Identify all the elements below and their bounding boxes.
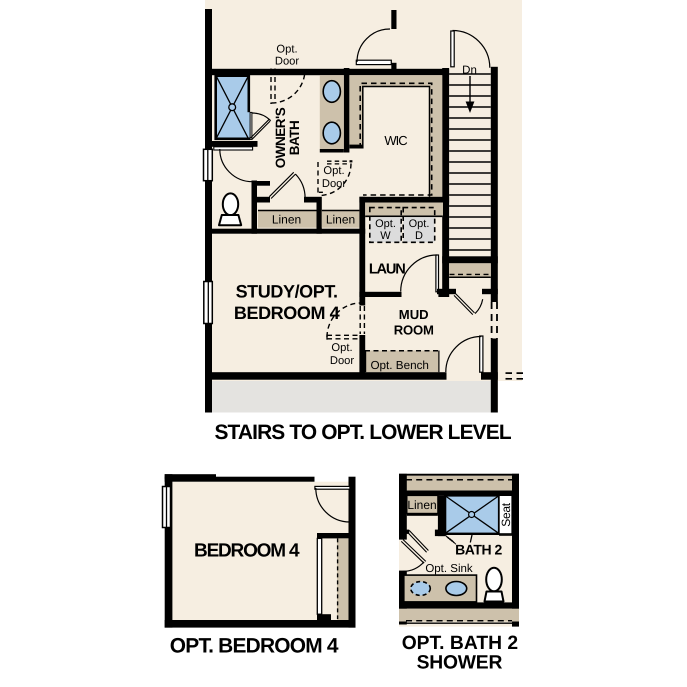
svg-text:Opt.: Opt.	[331, 342, 352, 354]
svg-text:W: W	[380, 230, 391, 242]
svg-text:Opt.: Opt.	[323, 165, 344, 177]
svg-text:Linen: Linen	[407, 498, 436, 512]
svg-text:BATH: BATH	[287, 121, 302, 156]
svg-text:BEDROOM 4: BEDROOM 4	[194, 541, 300, 562]
svg-text:STAIRS TO OPT. LOWER LEVEL: STAIRS TO OPT. LOWER LEVEL	[214, 421, 511, 444]
svg-text:Opt.: Opt.	[375, 218, 396, 230]
svg-text:OPT. BEDROOM 4: OPT. BEDROOM 4	[170, 635, 339, 658]
svg-text:SHOWER: SHOWER	[417, 653, 503, 674]
svg-text:Door: Door	[275, 56, 300, 68]
svg-text:Opt.: Opt.	[276, 44, 297, 56]
svg-text:Linen: Linen	[272, 213, 301, 227]
svg-text:Dn: Dn	[462, 65, 477, 77]
svg-text:STUDY/OPT.: STUDY/OPT.	[236, 282, 338, 302]
svg-text:LAUN: LAUN	[369, 262, 405, 278]
svg-text:Linen: Linen	[326, 213, 355, 227]
svg-text:BEDROOM 4: BEDROOM 4	[234, 303, 340, 323]
svg-text:WIC: WIC	[384, 133, 407, 148]
svg-text:D: D	[415, 230, 423, 242]
svg-text:Door: Door	[330, 355, 355, 367]
svg-text:Opt. Sink: Opt. Sink	[425, 563, 473, 575]
svg-text:Door: Door	[322, 178, 347, 190]
svg-text:OWNER'S: OWNER'S	[273, 107, 288, 168]
svg-text:Seat: Seat	[499, 502, 513, 526]
svg-text:MUD: MUD	[399, 307, 429, 322]
svg-text:ROOM: ROOM	[394, 323, 434, 338]
svg-text:OPT. BATH 2: OPT. BATH 2	[402, 633, 518, 654]
svg-text:BATH 2: BATH 2	[455, 541, 502, 557]
svg-text:Opt. Bench: Opt. Bench	[370, 359, 428, 372]
svg-text:Opt.: Opt.	[409, 218, 430, 230]
